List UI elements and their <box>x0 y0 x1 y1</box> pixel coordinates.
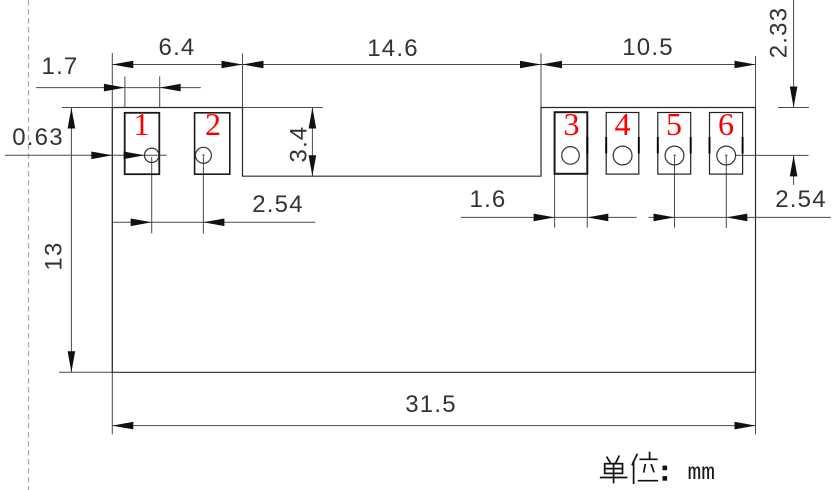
svg-text:2.54: 2.54 <box>252 191 304 218</box>
svg-text:1.6: 1.6 <box>470 186 507 213</box>
svg-text:1: 1 <box>134 106 150 142</box>
svg-text:10.5: 10.5 <box>622 34 674 61</box>
svg-text:2.54: 2.54 <box>775 186 827 213</box>
svg-text:0.63: 0.63 <box>12 124 64 151</box>
svg-text:2.33: 2.33 <box>766 7 793 59</box>
svg-text:3.4: 3.4 <box>286 126 313 163</box>
svg-text:13: 13 <box>41 241 68 270</box>
svg-text:3: 3 <box>564 106 580 142</box>
svg-text:1.7: 1.7 <box>42 53 79 80</box>
svg-text:31.5: 31.5 <box>405 391 457 418</box>
svg-text:2: 2 <box>205 106 221 142</box>
svg-text:14.6: 14.6 <box>367 35 419 62</box>
svg-text:6: 6 <box>718 106 734 142</box>
svg-text:5: 5 <box>666 106 682 142</box>
svg-text:6.4: 6.4 <box>159 34 196 61</box>
svg-text:mm: mm <box>688 460 716 486</box>
svg-text:4: 4 <box>615 106 631 142</box>
